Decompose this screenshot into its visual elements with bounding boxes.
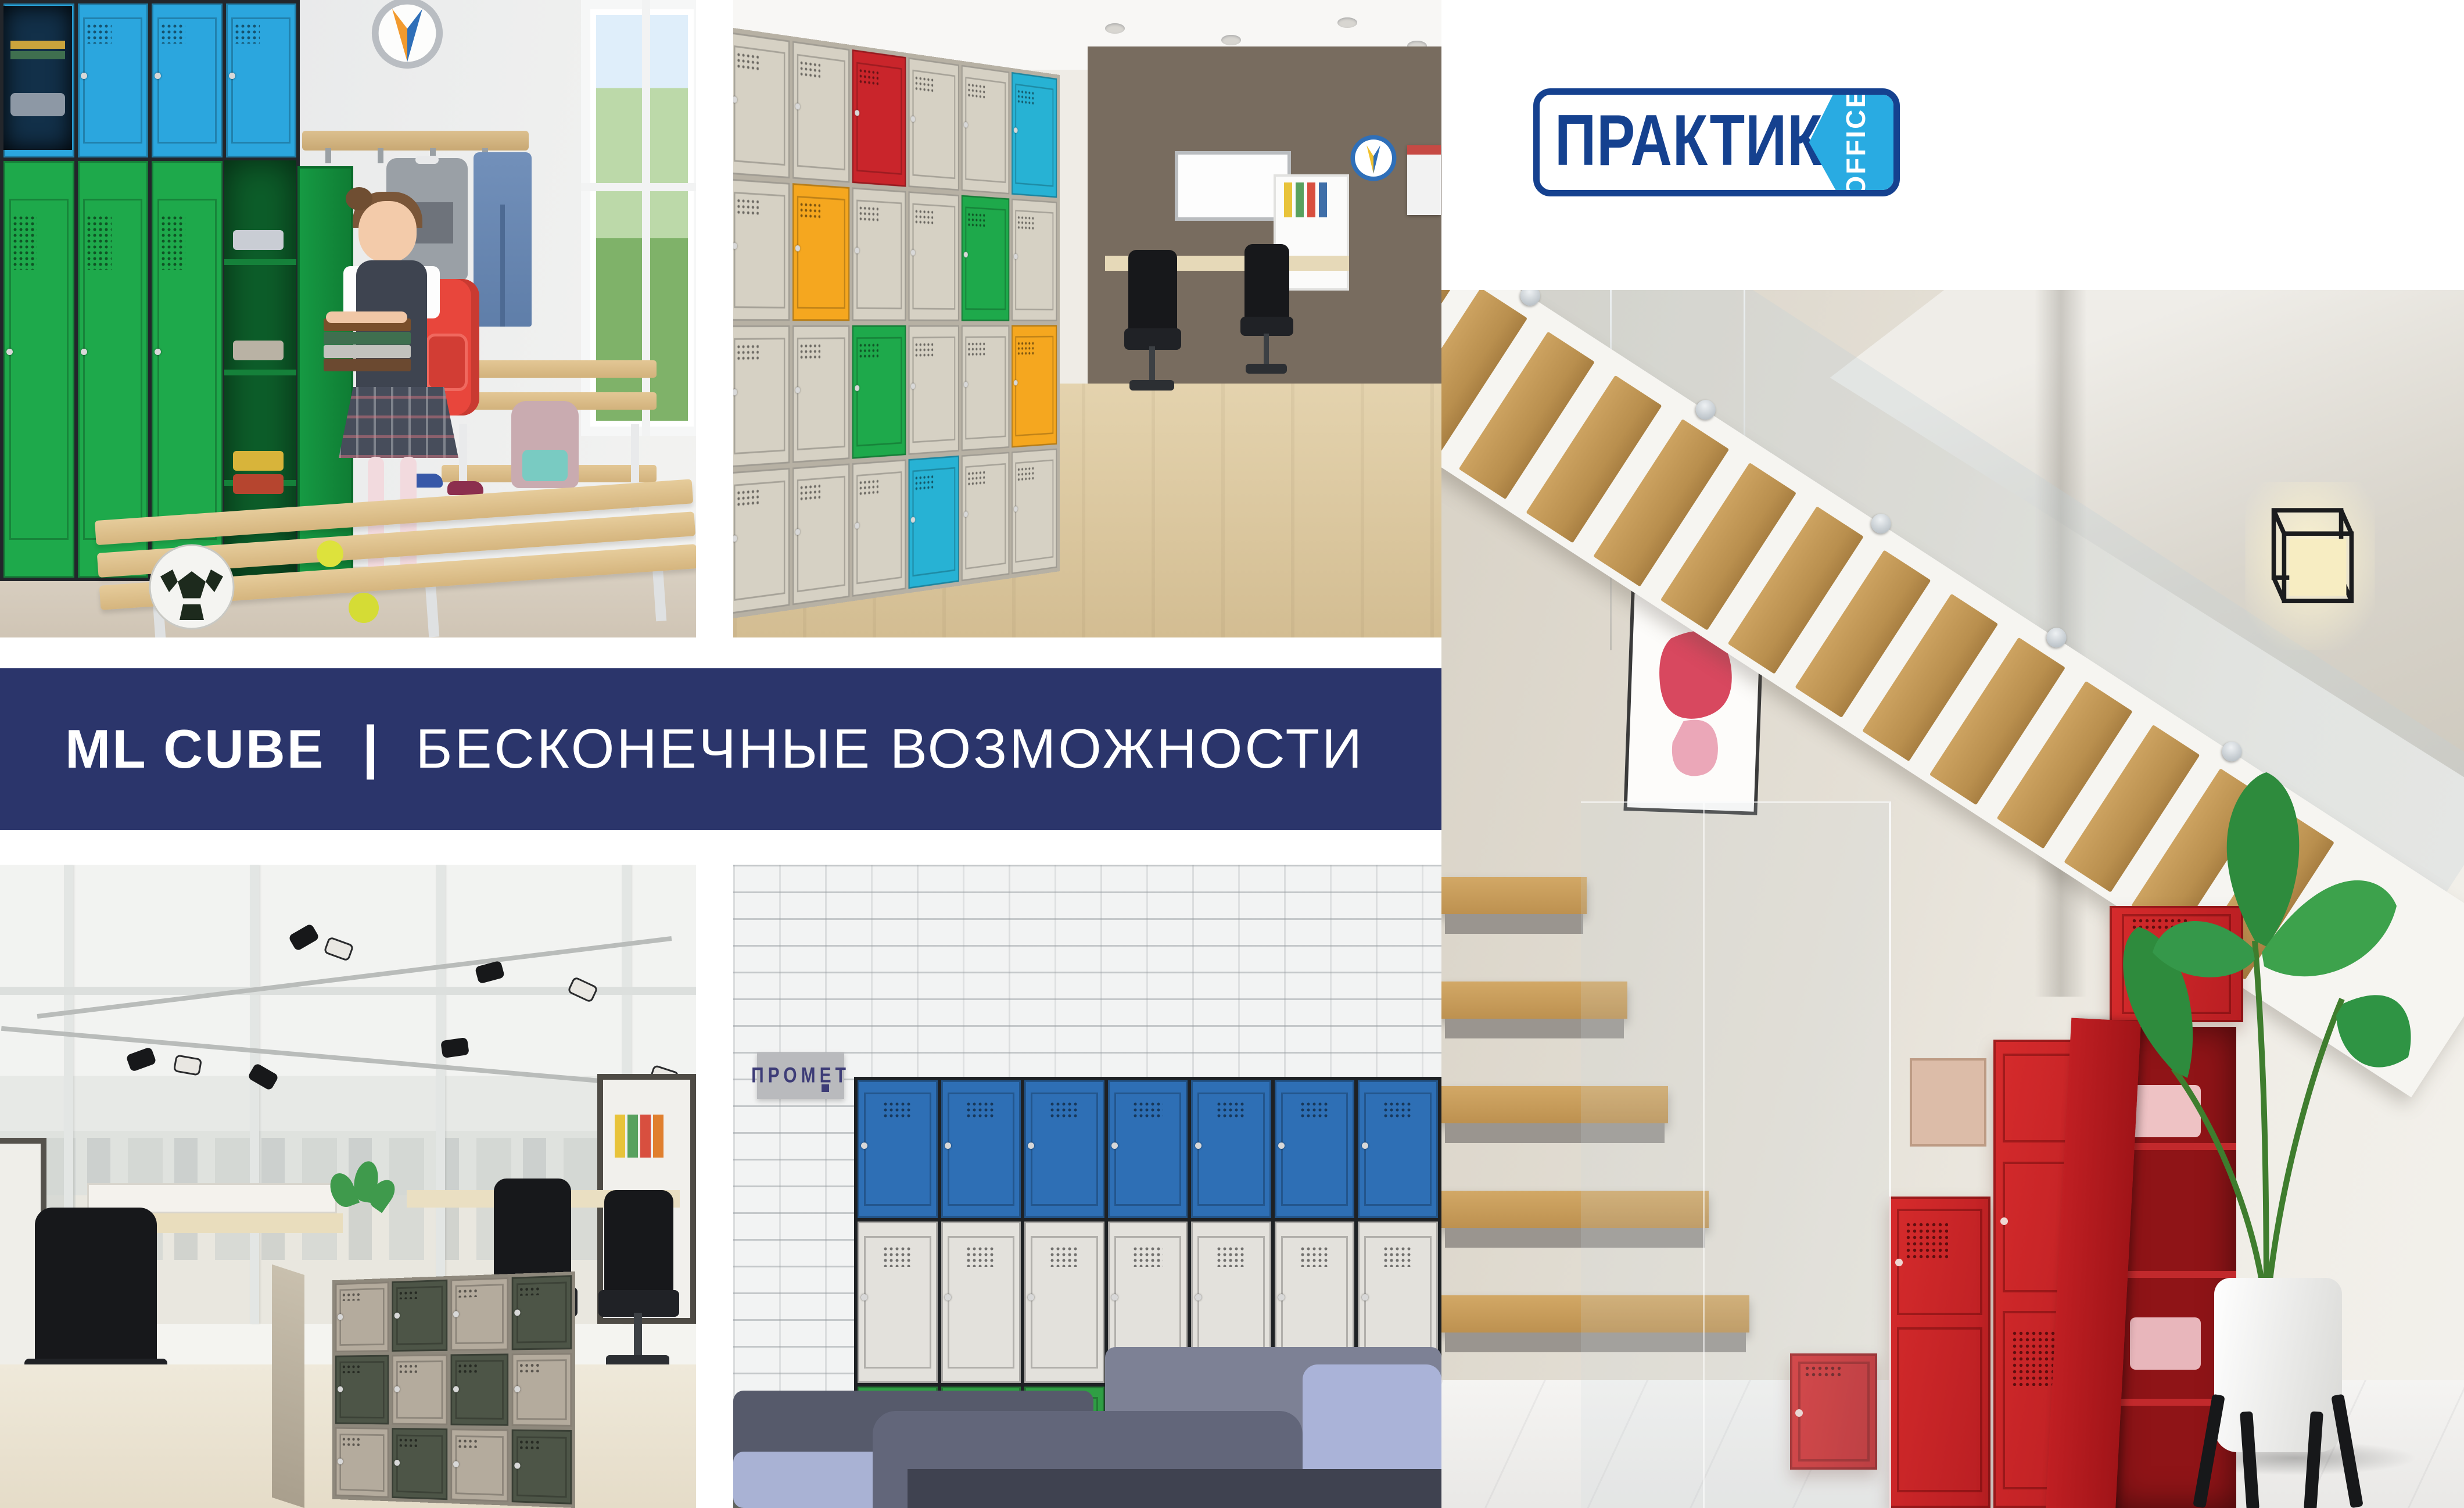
locker-door: [335, 1281, 389, 1352]
locker-door: [1191, 1080, 1271, 1218]
open-top-box: [3, 6, 72, 150]
locker-door: [152, 3, 223, 157]
locker-door: [852, 325, 906, 459]
locker-door: [1012, 72, 1057, 198]
locker-door: [451, 1429, 509, 1502]
locker-door: [909, 325, 959, 455]
locker-door: [909, 58, 959, 191]
praktik-office-logo: ПРАКТИК OFFICE: [1533, 88, 1900, 196]
book-stack: [324, 318, 411, 372]
photo-office-cube-locker-wall: [733, 0, 1441, 637]
logo-suffix-text: OFFICE: [1840, 88, 1871, 196]
locker-door: [962, 325, 1010, 451]
office-chair: [1244, 244, 1308, 384]
banner-divider: |: [363, 714, 379, 780]
locker-door: [941, 1222, 1021, 1383]
locker-door: [451, 1277, 509, 1351]
photo-open-space-office-cubes: [0, 865, 696, 1508]
clock-icon: [1349, 134, 1398, 182]
tennis-ball: [349, 593, 379, 623]
photo-school-locker-room: [0, 0, 696, 637]
locker-door: [909, 191, 959, 321]
logo-brand-text: ПРАКТИК: [1555, 99, 1823, 182]
plant-pot: [2214, 1278, 2342, 1452]
locker-door: [335, 1427, 389, 1498]
locker-door: [1024, 1080, 1104, 1218]
locker-grid: [733, 27, 1060, 619]
locker-door: [852, 459, 906, 597]
locker-door: [962, 452, 1010, 581]
clock-icon: [370, 0, 445, 71]
office-chair: [1128, 250, 1198, 401]
carton-box: [1910, 1058, 1986, 1147]
photo-stairs-red-lockers: [1441, 290, 2464, 1508]
locker-door: [962, 65, 1010, 195]
locker-door: [941, 1080, 1021, 1218]
locker-door: [1024, 1222, 1104, 1383]
locker-door: [1012, 325, 1057, 447]
locker-door: [733, 325, 790, 468]
plaid-skirt: [339, 387, 458, 458]
locker-door: [1012, 199, 1057, 321]
promet-sign: ПРОМЕТ: [757, 1052, 844, 1099]
locker-door: [858, 1080, 938, 1218]
locker-door: [512, 1275, 572, 1350]
locker-door: [78, 3, 149, 157]
tennis-ball: [317, 540, 343, 567]
locker-door: [792, 183, 849, 321]
sofa-base: [908, 1469, 1441, 1508]
locker-door: [392, 1280, 447, 1352]
locker-door: [733, 32, 790, 178]
locker-door: [226, 3, 297, 157]
locker-door: [1012, 449, 1057, 575]
cube-locker-wall: [733, 27, 1060, 619]
locker-door: [852, 49, 906, 187]
desk-plant: [325, 1155, 395, 1219]
stair-tread: [1441, 877, 1587, 914]
locker-door: [733, 468, 790, 614]
banner-tagline: БЕСКОНЕЧНЫЕ ВОЗМОЖНОСТИ: [415, 717, 1364, 781]
locker-door: [1108, 1080, 1188, 1218]
glass-partition: [1581, 801, 1891, 1508]
locker-door: [512, 1430, 572, 1505]
spotlight: [440, 1037, 469, 1058]
brochure-page: ML CUBE | БЕСКОНЕЧНЫЕ ВОЗМОЖНОСТИ: [0, 0, 2464, 1508]
locker-door: [451, 1353, 509, 1426]
locker-door: [858, 1222, 938, 1383]
product-banner: ML CUBE | БЕСКОНЕЧНЫЕ ВОЗМОЖНОСТИ: [0, 668, 1441, 830]
locker-door: [852, 187, 906, 321]
soccer-ball-icon: [148, 543, 235, 631]
locker-door: [392, 1428, 447, 1500]
locker-door: [1275, 1080, 1355, 1218]
locker-door: [512, 1353, 572, 1427]
banana-plant: [2092, 766, 2418, 1324]
locker-door: [962, 195, 1010, 321]
locker-door: [792, 41, 849, 182]
pink-backpack: [511, 401, 579, 488]
cube-ceiling-lamp-icon: [2243, 482, 2377, 650]
locker-door: [792, 325, 849, 463]
promet-sign-text: ПРОМЕТ: [751, 1063, 850, 1088]
photo-brick-wall-lockers-sofa: ПРОМЕТ: [733, 865, 1441, 1508]
product-name: ML CUBE: [65, 718, 325, 780]
locker-door: [1358, 1080, 1438, 1218]
wall-calendar: [1407, 145, 1441, 215]
locker-door: [78, 161, 149, 578]
locker-door: [733, 178, 790, 321]
locker-door: [3, 161, 74, 578]
checkerboard-cube-block: [332, 1271, 575, 1508]
locker-door: [792, 463, 849, 605]
locker-door: [335, 1355, 389, 1424]
locker-grid: [332, 1271, 575, 1508]
locker-door: [909, 456, 959, 589]
locker-door: [392, 1354, 447, 1425]
coat-rack: [302, 131, 529, 151]
red-locker-column: [1889, 1197, 1990, 1508]
office-chair: [604, 1190, 696, 1382]
